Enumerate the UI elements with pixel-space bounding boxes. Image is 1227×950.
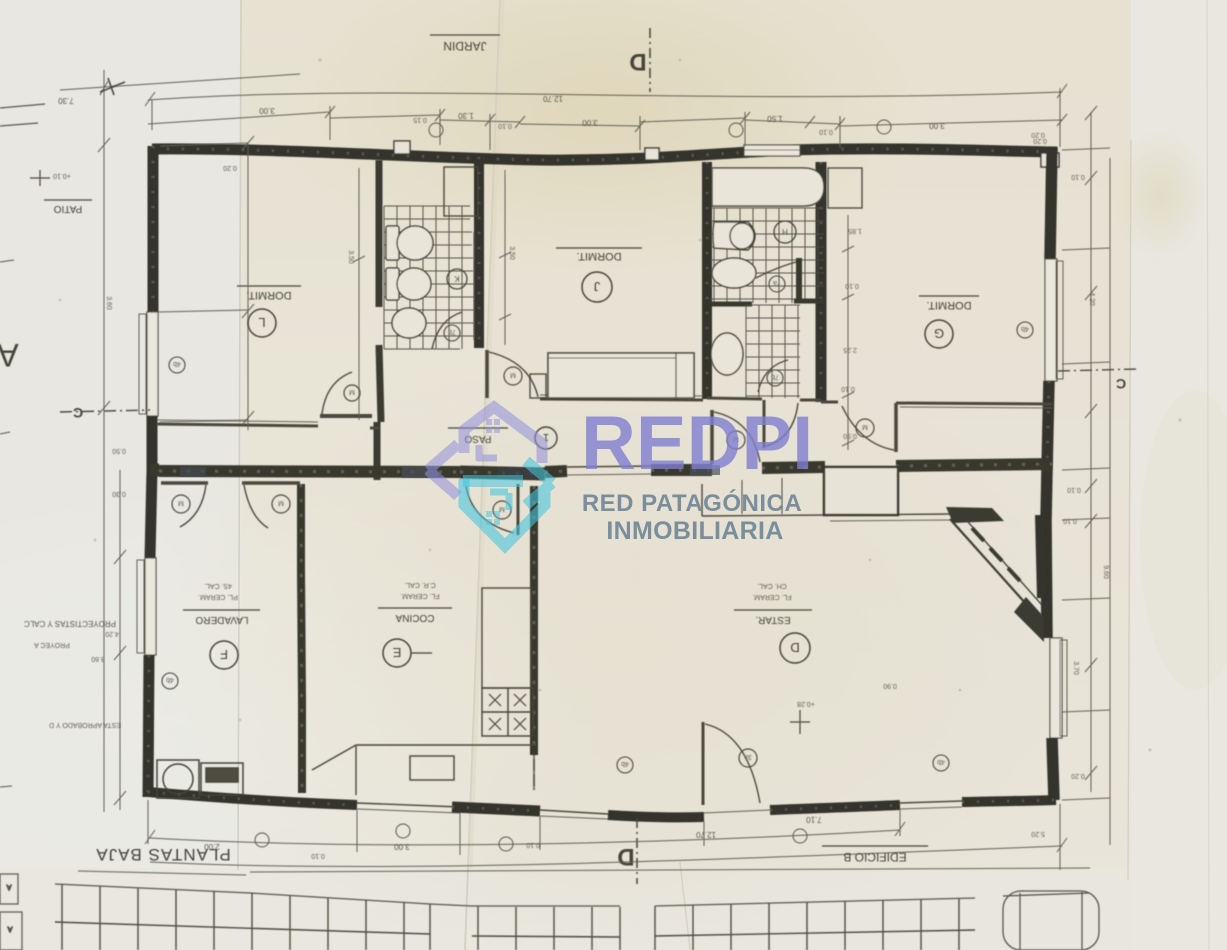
svg-text:RED PATAGÓNICA: RED PATAGÓNICA [582, 489, 802, 517]
svg-text:REDPI: REDPI [581, 401, 813, 486]
svg-text:INMOBILIARIA: INMOBILIARIA [606, 517, 783, 545]
